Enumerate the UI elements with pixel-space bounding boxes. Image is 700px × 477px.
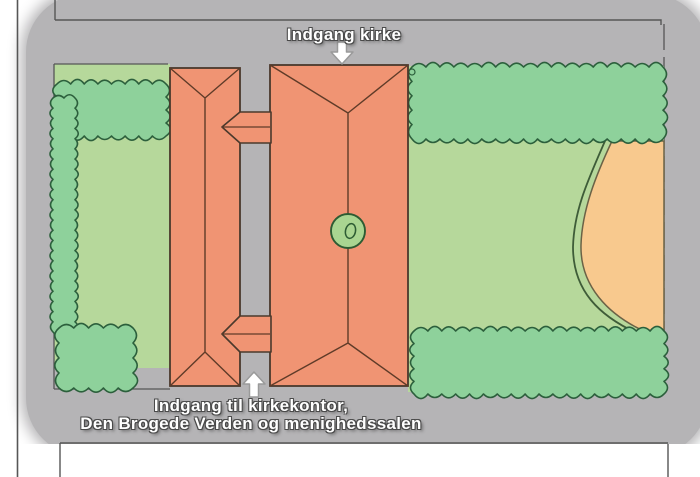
church-entrance-label: Indgang kirke (287, 25, 401, 45)
up-arrow-icon (243, 372, 265, 397)
hedge-left-bottom (55, 323, 138, 392)
lower-white-band (18, 444, 700, 477)
office-entrance-label-line2: Den Brogede Verden og menighedssalen (80, 415, 421, 433)
small-bush-dot (409, 69, 415, 75)
office-entrance-label: Indgang til kirkekontor, Den Brogede Ver… (80, 397, 421, 432)
hedge-right-bottom (410, 326, 669, 398)
roof-garden-circle (331, 214, 365, 248)
hedge-left-side (50, 95, 78, 336)
down-arrow-icon (331, 42, 353, 64)
roof-garden-circle-outer (331, 214, 365, 248)
site-map-page: Indgang kirke Indgang til kirkekontor, D… (0, 0, 700, 477)
office-entrance-label-line1: Indgang til kirkekontor, (80, 397, 421, 415)
hedge-right-top (408, 62, 668, 143)
